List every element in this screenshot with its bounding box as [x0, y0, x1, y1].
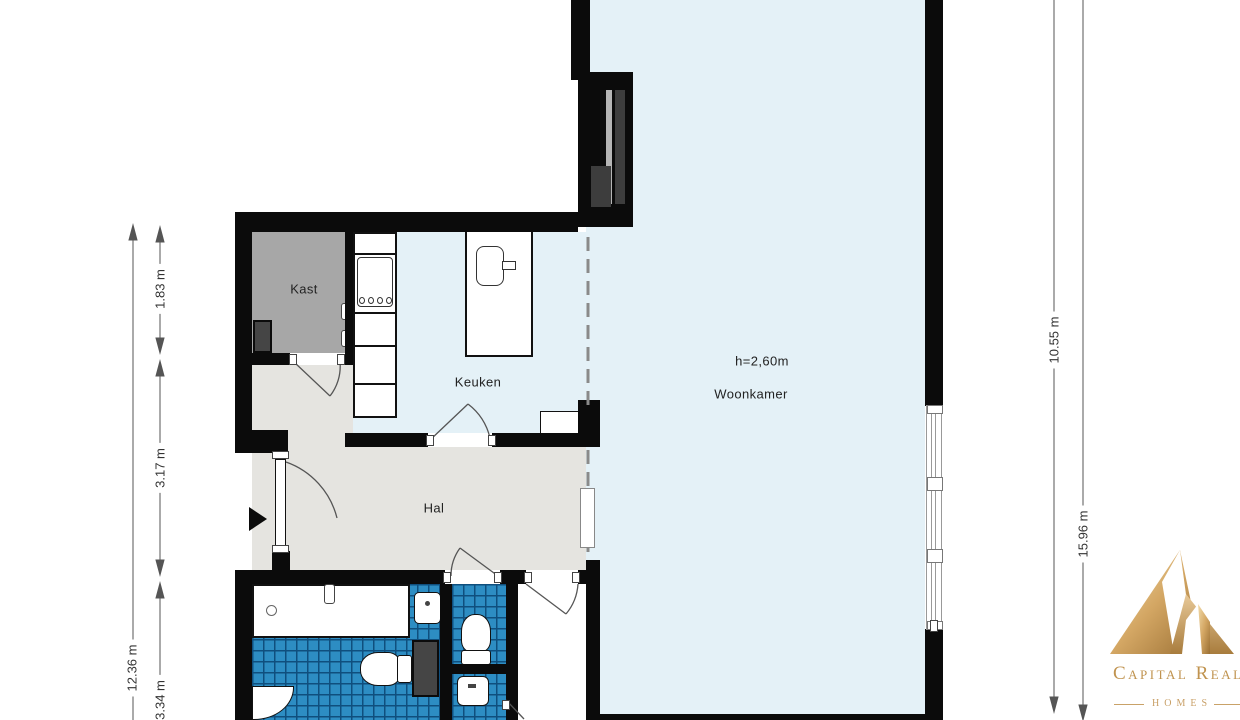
- floorplan-canvas: Kast Keuken Hal h=2,60m Woonkamer 1.83 m…: [0, 0, 1240, 720]
- wall-bottom: [586, 714, 943, 720]
- dim-label-10-55: 10.55 m: [1046, 312, 1063, 369]
- door-jamb: [272, 545, 289, 553]
- arrow-up: [156, 227, 164, 242]
- dim-label-3-34: 3.34 m: [152, 675, 169, 720]
- keuken-label: Keuken: [455, 375, 502, 390]
- wall-left-lower: [235, 578, 252, 720]
- wall-bath-top-b: [500, 570, 526, 584]
- door-jamb: [426, 435, 434, 446]
- arrow-down: [156, 338, 164, 353]
- arrow-up: [129, 225, 137, 240]
- arrow-down: [1079, 705, 1087, 720]
- dim-label-3-17: 3.17 m: [152, 443, 169, 493]
- counter-divider: [354, 383, 396, 385]
- bathtub-faucet-icon: [324, 584, 335, 604]
- arrow-up: [156, 361, 164, 376]
- wc-sink: [457, 676, 489, 706]
- wc-sink-tap-icon: [468, 684, 476, 688]
- dim-label-1-83: 1.83 m: [152, 264, 169, 314]
- window-right: [926, 405, 942, 630]
- stove-knobs: [359, 297, 392, 304]
- entrance-door-leaf: [275, 459, 286, 547]
- wall-wc-inner: [452, 664, 506, 674]
- bathtub-drain-icon: [266, 605, 277, 616]
- wall-bath-wc: [440, 584, 452, 720]
- counter-divider: [354, 253, 396, 255]
- hal-label: Hal: [424, 501, 445, 516]
- toilet-tank: [397, 655, 412, 683]
- wall-left-upper: [235, 212, 252, 430]
- arrow-up: [156, 583, 164, 598]
- wc-toilet-tank: [461, 650, 491, 665]
- door-jamb: [502, 700, 510, 710]
- wall-kast-keuken: [345, 232, 353, 365]
- door-jamb: [524, 572, 532, 583]
- duct-shaft: [412, 640, 439, 697]
- logo-rule-left: [1114, 704, 1144, 705]
- door-jamb: [488, 435, 496, 446]
- radiator: [580, 488, 595, 548]
- wall-top: [235, 212, 578, 232]
- wall-keuken-stub: [578, 400, 600, 447]
- sink-faucet-icon: [502, 261, 516, 270]
- wall-right-bottom: [925, 629, 943, 718]
- door-jamb: [272, 451, 289, 459]
- door-jamb: [572, 572, 580, 583]
- door-jamb: [443, 572, 451, 583]
- chimney-flue-dark: [615, 90, 625, 204]
- berging-floor: [518, 584, 586, 714]
- keuken-cabinet-box: [540, 411, 583, 435]
- kast-shaft: [253, 320, 272, 353]
- kast-label: Kast: [290, 282, 318, 297]
- toilet-bowl: [360, 652, 400, 686]
- logo-brand-name: Capital Realti: [1113, 663, 1240, 685]
- wall-storage-living: [586, 560, 600, 718]
- logo-brand-sub: HOMES: [1152, 698, 1212, 709]
- wall-keuken-bottom-a: [345, 433, 428, 447]
- logo-mountains-icon: [1098, 542, 1240, 662]
- chimney-block: [591, 166, 611, 207]
- door-jamb: [289, 354, 297, 365]
- door-jamb: [494, 572, 502, 583]
- wall-right-top: [925, 0, 943, 406]
- door-jamb: [337, 354, 345, 365]
- dim-label-12-36: 12.36 m: [124, 640, 141, 697]
- washbasin: [414, 592, 441, 624]
- hal-floor-main: [252, 447, 586, 570]
- ceiling-height-label: h=2,60m: [735, 354, 789, 369]
- washbasin-tap-icon: [425, 601, 430, 606]
- dim-label-15-96: 15.96 m: [1075, 506, 1092, 563]
- arrow-down: [156, 560, 164, 575]
- counter-divider: [354, 312, 396, 314]
- logo-rule-right: [1214, 704, 1240, 705]
- woonkamer-label: Woonkamer: [714, 387, 787, 402]
- window-cap: [930, 620, 938, 632]
- wall-bath-top-a: [235, 570, 445, 584]
- arrow-down: [1050, 697, 1058, 712]
- wall-kast-bottom: [235, 353, 290, 365]
- wall-living-left-top: [571, 0, 590, 80]
- island-sink: [476, 246, 504, 286]
- wall-left-pier: [235, 430, 288, 453]
- counter-divider: [354, 345, 396, 347]
- wc-toilet-bowl: [461, 614, 491, 652]
